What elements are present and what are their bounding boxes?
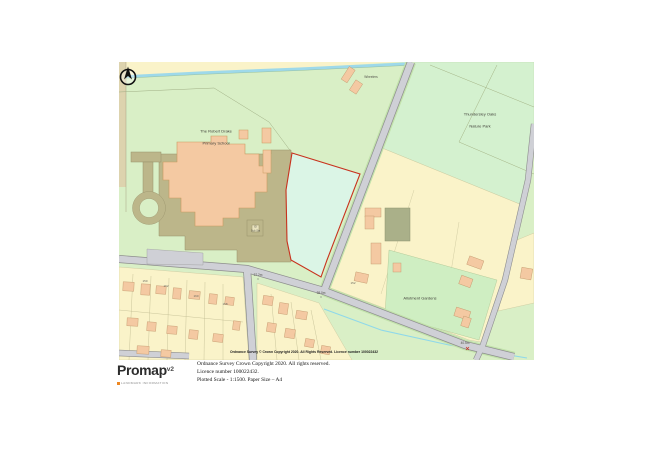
house-number: 160 — [193, 294, 198, 298]
copyright-line2: Licence number 100022432. — [197, 368, 330, 376]
school-name-line1: The Robert Drake — [200, 129, 232, 134]
house-number: 150 — [142, 279, 147, 283]
house-number: 162 — [163, 284, 168, 288]
map-copyright-watermark: Ordnance Survey © Crown Copyright 2020. … — [230, 350, 410, 354]
copyright-block: Ordnance Survey Crown Copyright 2020. Al… — [197, 360, 330, 385]
nature-park-line2: Nature Park — [469, 124, 490, 129]
promap-logo-version: v2 — [167, 366, 174, 373]
spot-height-2: 38.0m — [317, 291, 326, 295]
wheelers-label: Wheelers — [364, 75, 377, 79]
nature-park-line1: Thundersley Oaks — [464, 112, 496, 117]
large-grey-building — [385, 208, 410, 241]
copyright-line1: Ordnance Survey Crown Copyright 2020. Al… — [197, 360, 330, 368]
house-number: 152 — [350, 281, 355, 285]
landmark-tagline: LANDMARK INFORMATION — [121, 381, 168, 385]
page: { "map": { "school_name_line1": "The Rob… — [0, 0, 650, 459]
spot-height-3: 40.5m — [461, 341, 470, 345]
map-canvas: The Robert Drake Primary School Wheelers… — [119, 62, 534, 360]
copyright-line3: Plotted Scale - 1:1500. Paper Size – A4 — [197, 376, 330, 384]
school-name-line2: Primary School — [202, 141, 229, 146]
promap-logo-text: Promap — [117, 362, 167, 378]
house-number: 158 — [222, 302, 227, 306]
allotment-label: Allotment Gardens — [403, 296, 436, 301]
promap-logo: Promapv2 LANDMARK INFORMATION — [117, 362, 195, 385]
landmark-tagline-row: LANDMARK INFORMATION — [117, 381, 195, 385]
landmark-square-icon — [117, 382, 120, 385]
spot-height-1: 37.2m — [254, 273, 263, 277]
substation-label-line1: El — [254, 225, 256, 228]
map-svg — [119, 62, 534, 360]
substation-label-line2: Sub Sta — [251, 229, 260, 232]
